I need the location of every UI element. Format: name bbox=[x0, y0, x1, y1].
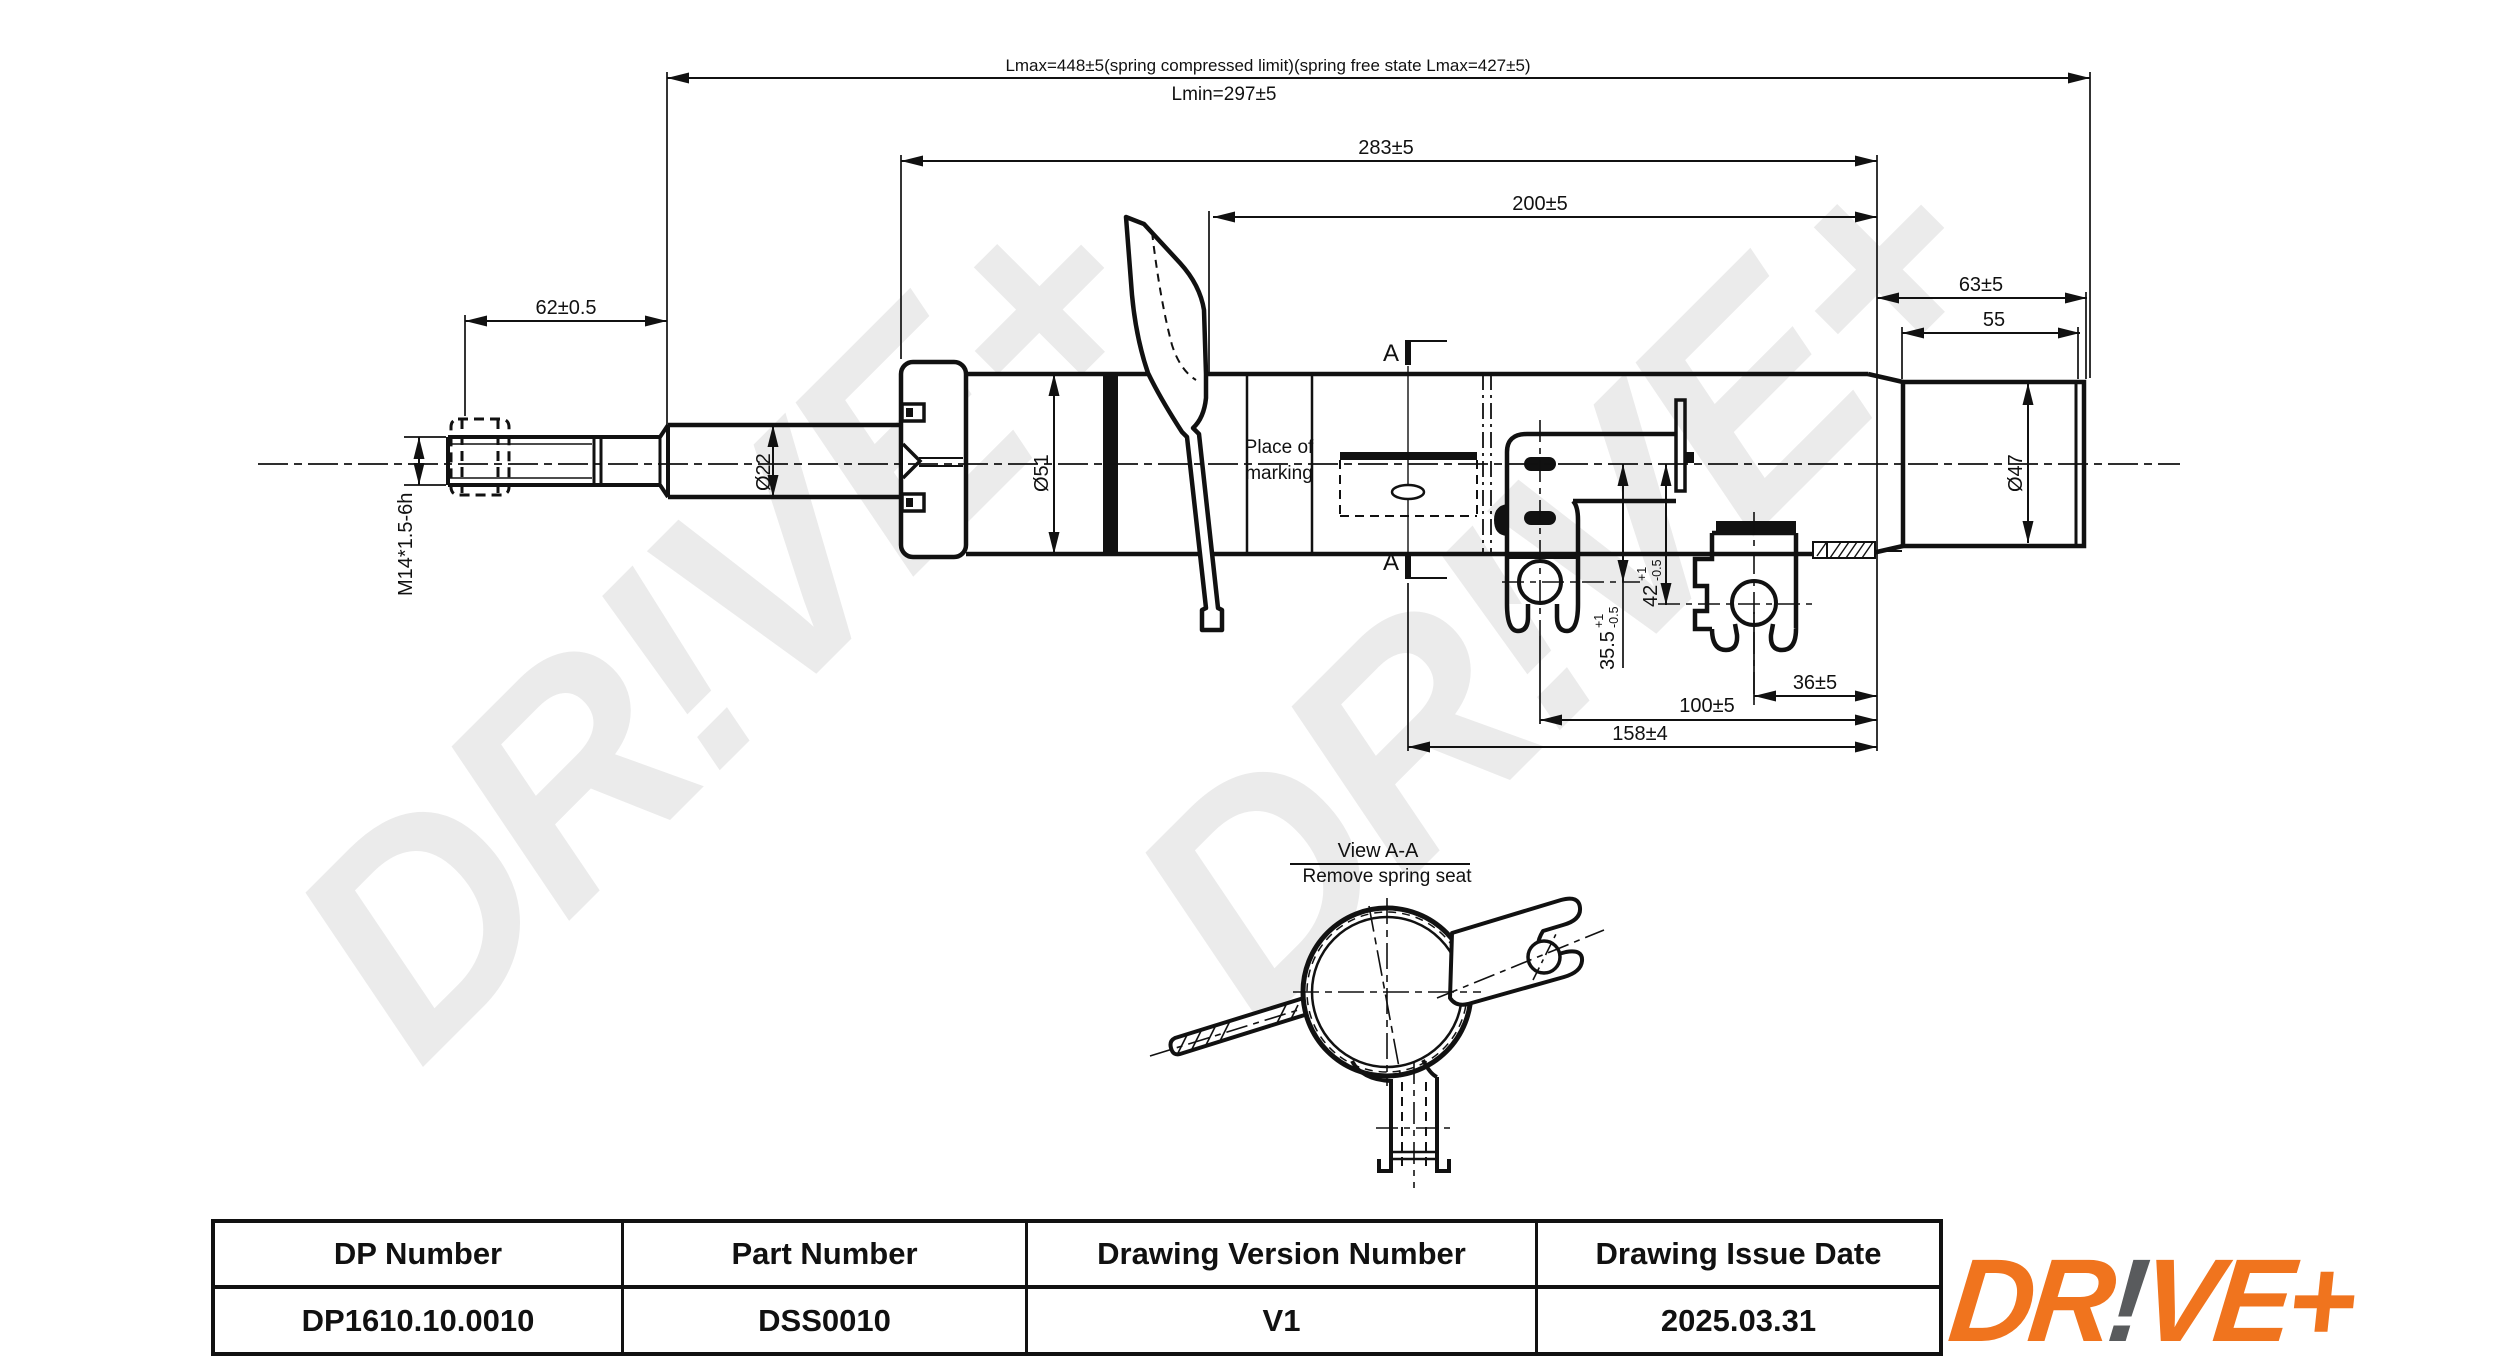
dim-355-tol-plus: +1 bbox=[1592, 614, 1606, 628]
dim-355-value: 35.5 bbox=[1597, 631, 1619, 670]
view-aa-subtitle: Remove spring seat bbox=[1303, 866, 1473, 887]
dim-dia51-label: Ø51 bbox=[1031, 454, 1053, 492]
title-block-header: Part Number bbox=[624, 1223, 1028, 1289]
watermark-text: DR!VE+ bbox=[227, 134, 1209, 1116]
dim-55-label: 55 bbox=[1983, 309, 2005, 331]
dim-36-label: 36±5 bbox=[1793, 672, 1837, 694]
logo-part1: DR bbox=[1943, 1235, 2115, 1359]
place-of-marking-label: Place of bbox=[1245, 437, 1314, 458]
dp-number-value: DP1610.10.0010 bbox=[215, 1289, 624, 1352]
section-letter-top: A bbox=[1383, 340, 1399, 367]
hatched-clip bbox=[1813, 542, 1902, 558]
dim-42-tol-plus: +1 bbox=[1635, 567, 1649, 581]
dim-200-label: 200±5 bbox=[1512, 193, 1567, 215]
dim-m14-label: M14*1.5-6h bbox=[395, 493, 417, 596]
dim-100-label: 100±5 bbox=[1679, 695, 1734, 717]
dim-63-label: 63±5 bbox=[1959, 274, 2003, 296]
dim-283-label: 283±5 bbox=[1358, 137, 1413, 159]
dim-355-label: 35.5 +1 -0.5 bbox=[1592, 606, 1621, 670]
drawing-sheet: DR!VE+ DR!VE+ bbox=[0, 0, 2500, 1359]
drawing-issue-date-value: 2025.03.31 bbox=[1538, 1289, 1939, 1352]
dim-42-value: 42 bbox=[1640, 585, 1662, 607]
title-block-header: Drawing Issue Date bbox=[1538, 1223, 1939, 1289]
fork-hole-section bbox=[1528, 941, 1560, 973]
place-of-marking-label: marking bbox=[1245, 463, 1313, 484]
dim-158-label: 158±4 bbox=[1612, 723, 1667, 745]
dim-dia47-label: Ø47 bbox=[2005, 454, 2027, 492]
title-block: DP Number Part Number Drawing Version Nu… bbox=[211, 1219, 1943, 1356]
dim-lmax-label: Lmax=448±5(spring compressed limit)(spri… bbox=[1005, 56, 1530, 75]
dim-42-tol-minus: -0.5 bbox=[1650, 559, 1664, 581]
dim-dia22-label: Ø22 bbox=[753, 453, 775, 491]
drawing-version-value: V1 bbox=[1028, 1289, 1538, 1352]
title-block-header: DP Number bbox=[215, 1223, 624, 1289]
view-aa-title: View A-A bbox=[1338, 840, 1419, 862]
bottom-bracket-section bbox=[1352, 1060, 1452, 1188]
dim-62-label: 62±0.5 bbox=[535, 297, 596, 319]
part-number-value: DSS0010 bbox=[624, 1289, 1028, 1352]
logo-part2: VE+ bbox=[2135, 1235, 2357, 1359]
technical-drawing: DR!VE+ DR!VE+ bbox=[0, 0, 2500, 1359]
brand-logo: DR!VE+ bbox=[1945, 1252, 2500, 1356]
dim-355-tol-minus: -0.5 bbox=[1607, 606, 1621, 628]
dim-lmin-label: Lmin=297±5 bbox=[1172, 84, 1277, 105]
spring-seat-collar bbox=[901, 362, 966, 557]
section-letter-bottom: A bbox=[1383, 549, 1399, 576]
title-block-header: Drawing Version Number bbox=[1028, 1223, 1538, 1289]
marking-stamp bbox=[1392, 485, 1424, 499]
